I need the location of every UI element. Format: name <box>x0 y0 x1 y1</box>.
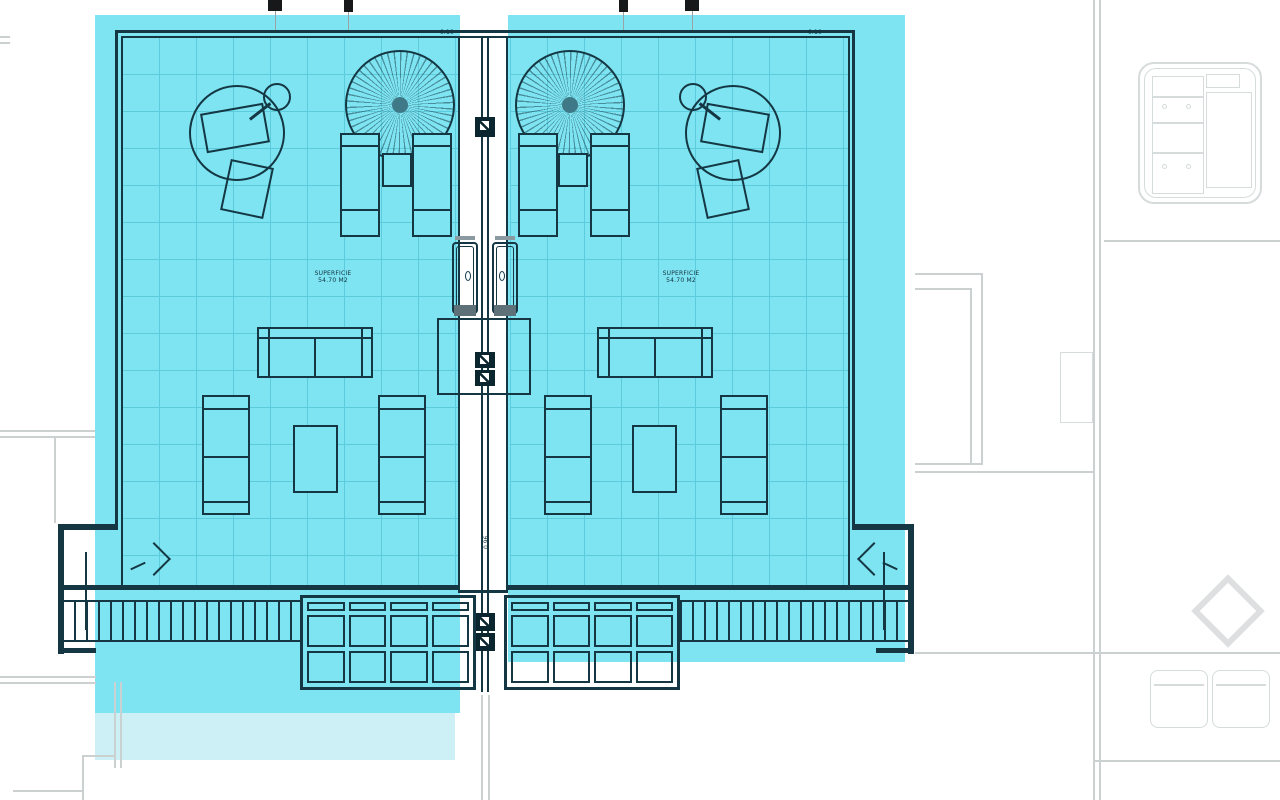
pergola-left <box>300 595 476 690</box>
bottom-wall-right <box>508 585 914 590</box>
left-step-wall <box>58 648 96 653</box>
neighbour-lounger-line <box>1216 684 1266 686</box>
armchair-line <box>204 456 248 458</box>
column-symbol <box>475 117 495 137</box>
door-left-lintel <box>455 236 475 240</box>
wall-stub <box>344 0 353 12</box>
sun-lounger-line <box>414 209 450 211</box>
context-wall-line <box>54 437 56 523</box>
floorplan-canvas: 6.10 6.10 0.96 SUPERFICIE 54.70 M2 SUPER… <box>0 0 1280 800</box>
area-label-left: SUPERFICIE 54.70 M2 <box>298 270 368 284</box>
door-right-lintel <box>495 236 515 240</box>
pergola-cell <box>307 615 345 647</box>
pergola-cell <box>349 615 387 647</box>
context-wall-line <box>13 790 83 792</box>
armchair-line <box>380 456 424 458</box>
pergola-cell <box>594 602 632 611</box>
pergola-cell <box>511 602 549 611</box>
column-symbol <box>475 613 495 631</box>
sun-lounger <box>412 133 452 237</box>
context-wall-line <box>488 695 490 800</box>
sun-lounger-line <box>414 145 450 147</box>
context-wall-line <box>0 430 95 432</box>
hot-tub-jet <box>1162 164 1167 169</box>
sun-lounger <box>518 133 558 237</box>
left-step-wall <box>58 524 118 530</box>
armchair-line <box>204 408 248 410</box>
sofa-seat-divider <box>314 338 316 376</box>
hot-tub-jet <box>1186 104 1191 109</box>
context-wall-line <box>1099 0 1101 800</box>
railing-right <box>680 600 912 642</box>
dimension-label-left: 6.10 <box>434 29 460 36</box>
diamond-symbol <box>1191 574 1265 648</box>
door-left-sill <box>454 305 476 316</box>
pergola-cell <box>636 651 674 683</box>
pergola-cell <box>553 615 591 647</box>
armchair-line <box>546 501 590 503</box>
pergola-cell <box>390 602 428 611</box>
dimension-label-right: 6.10 <box>802 29 828 36</box>
context-wall-line <box>0 42 10 44</box>
armchair-line <box>722 501 766 503</box>
armchair-line <box>380 408 424 410</box>
hot-tub-jet <box>1162 104 1167 109</box>
side-table <box>382 153 412 187</box>
pergola-cell <box>349 602 387 611</box>
parasol-hub-left <box>392 97 408 113</box>
context-wall-line <box>82 755 114 757</box>
coffee-table <box>632 425 677 493</box>
armchair-line <box>380 501 424 503</box>
context-wall-line <box>0 436 95 438</box>
armchair <box>720 395 768 515</box>
dimension-label-corridor: 0.96 <box>483 527 490 557</box>
planter-box <box>437 318 531 395</box>
area-label-left-line2: 54.70 M2 <box>298 277 368 284</box>
context-wall-line <box>915 471 1093 473</box>
context-wall-line <box>0 682 96 684</box>
neighbour-lounger <box>1150 670 1208 728</box>
sun-lounger-line <box>592 209 628 211</box>
armchair <box>544 395 592 515</box>
context-wall-line <box>0 676 96 678</box>
door-right-handle <box>499 271 505 281</box>
area-label-left-line1: SUPERFICIE <box>298 270 368 277</box>
context-wall-line <box>114 682 116 768</box>
parasol-hub-right <box>562 97 578 113</box>
pergola-cell <box>636 615 674 647</box>
hot-tub-bench-line <box>1152 152 1204 154</box>
corridor-cross-wall <box>458 590 508 593</box>
stub-connector <box>275 11 276 30</box>
neighbour-lounger <box>1212 670 1270 728</box>
pergola-right <box>504 595 680 690</box>
bottom-wall-left <box>58 585 460 590</box>
pergola-cell <box>307 651 345 683</box>
pergola-cell <box>432 602 470 611</box>
sofa-arm-line <box>701 329 703 376</box>
pergola-cell <box>432 615 470 647</box>
context-wall-line <box>970 288 972 464</box>
area-label-right: SUPERFICIE 54.70 M2 <box>646 270 716 284</box>
right-step-wall <box>852 524 914 530</box>
armchair-line <box>546 456 590 458</box>
right-wall-outer <box>852 30 855 530</box>
context-wall-line <box>981 273 983 465</box>
context-wall-line <box>915 288 971 290</box>
armchair <box>202 395 250 515</box>
wall-stub <box>685 0 699 11</box>
wall-stub <box>268 0 282 11</box>
context-wall-line <box>1093 0 1095 800</box>
pergola-cell <box>432 651 470 683</box>
pergola-cell <box>594 651 632 683</box>
column-symbol <box>475 633 495 651</box>
right-wall-inner <box>848 36 850 586</box>
top-wall-inner <box>122 36 848 38</box>
hot-tub-seat <box>1206 92 1252 188</box>
hot-tub-bench-line <box>1152 122 1204 124</box>
wall-stub <box>619 0 628 12</box>
armchair <box>378 395 426 515</box>
door-right-sill <box>494 305 516 316</box>
pergola-cell <box>553 651 591 683</box>
sun-lounger <box>590 133 630 237</box>
context-wall-line <box>915 463 983 465</box>
sun-lounger-line <box>342 209 378 211</box>
pergola-cell <box>511 615 549 647</box>
highlight-left-terrace-fade <box>95 713 455 760</box>
pergola-cell <box>349 651 387 683</box>
left-wall-outer <box>115 30 118 530</box>
stub-connector <box>692 11 693 30</box>
hot-tub-jet <box>1186 164 1191 169</box>
context-wall-line <box>915 652 1280 654</box>
top-wall-outer <box>115 30 855 33</box>
door-left-handle <box>465 271 471 281</box>
sofa-seat-divider <box>654 338 656 376</box>
pergola-cell <box>636 602 674 611</box>
left-wall-inner <box>121 36 123 586</box>
area-label-right-line1: SUPERFICIE <box>646 270 716 277</box>
context-wall-line <box>120 682 122 768</box>
pergola-cell <box>390 651 428 683</box>
sun-lounger <box>340 133 380 237</box>
stub-connector <box>348 12 349 30</box>
context-door-leaf <box>1060 352 1093 423</box>
hot-tub-control <box>1206 74 1240 88</box>
armchair-line <box>722 456 766 458</box>
sun-lounger-line <box>520 145 556 147</box>
side-table <box>558 153 588 187</box>
area-label-right-line2: 54.70 M2 <box>646 277 716 284</box>
pergola-cell <box>553 602 591 611</box>
context-wall-line <box>1093 760 1280 762</box>
sofa-arm-line <box>608 329 610 376</box>
sun-lounger-line <box>342 145 378 147</box>
neighbour-lounger-line <box>1154 684 1204 686</box>
stub-connector <box>623 12 624 30</box>
coffee-table <box>293 425 338 493</box>
pergola-cell <box>307 602 345 611</box>
context-wall-line <box>82 755 84 800</box>
right-step-wall <box>876 648 914 653</box>
context-wall-line <box>0 36 10 38</box>
pergola-cell <box>594 615 632 647</box>
armchair-line <box>546 408 590 410</box>
armchair-line <box>722 408 766 410</box>
sun-lounger-line <box>592 145 628 147</box>
pergola-cell <box>511 651 549 683</box>
context-wall-line <box>1104 240 1280 242</box>
sofa-arm-line <box>268 329 270 376</box>
context-wall-line <box>915 273 983 275</box>
sofa-arm-line <box>361 329 363 376</box>
hot-tub-bench-line <box>1152 96 1204 98</box>
context-wall-line <box>481 695 483 800</box>
armchair-line <box>204 501 248 503</box>
pergola-cell <box>390 615 428 647</box>
railing-left <box>62 600 300 642</box>
hot-tub-bench <box>1152 76 1204 194</box>
sun-lounger-line <box>520 209 556 211</box>
